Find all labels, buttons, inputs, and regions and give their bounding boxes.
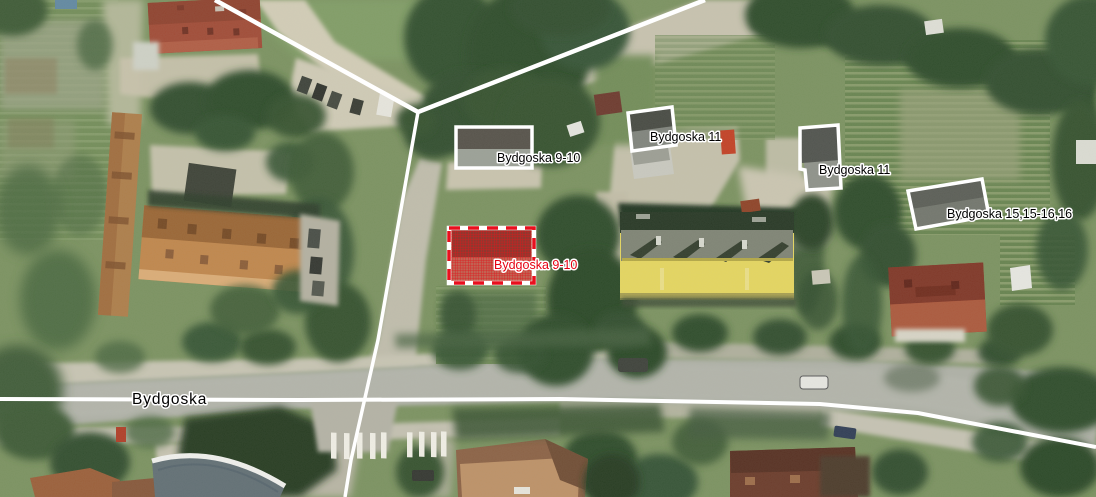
svg-text:Bydgoska 9-10: Bydgoska 9-10 [494,258,577,272]
svg-text:Bydgoska 15,15-16,16: Bydgoska 15,15-16,16 [947,207,1072,221]
svg-text:Bydgoska 11: Bydgoska 11 [819,163,890,177]
svg-text:Bydgoska 9-10: Bydgoska 9-10 [497,151,580,165]
svg-text:Bydgoska: Bydgoska [132,391,207,408]
svg-text:Bydgoska 11: Bydgoska 11 [650,130,721,144]
